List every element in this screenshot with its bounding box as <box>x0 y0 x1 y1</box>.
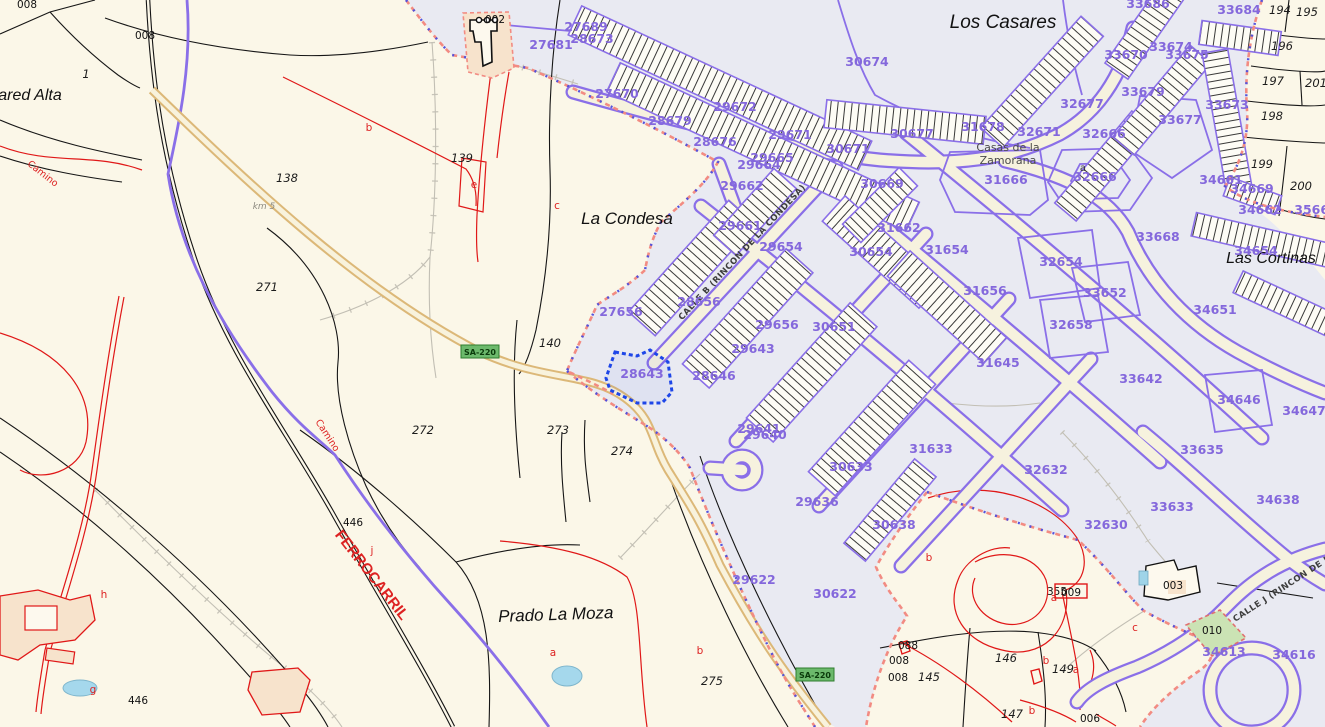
place-name: Los Casares <box>950 12 1057 33</box>
parcel-label-urban: 31656 <box>963 283 1007 298</box>
parcel-label-urban: 33686 <box>1126 0 1170 11</box>
parcel-label-urban: 31666 <box>984 172 1028 187</box>
parcel-label-rural: 196 <box>1271 39 1293 53</box>
parcel-label-rural: 008 <box>888 672 908 684</box>
cadastral-map-viewport[interactable]: SA-220SA-220 Los CasaresLa CondesaPrado … <box>0 0 1325 727</box>
parcel-label-urban: 32677 <box>1060 96 1104 111</box>
parcel-label-urban: 34647 <box>1282 403 1325 418</box>
parcel-label-rural: 200 <box>1290 179 1312 193</box>
settlement-names-layer: Casas de laZamorana <box>976 141 1039 167</box>
parcel-label-urban: 30674 <box>845 54 889 69</box>
place-name: ared Alta <box>0 87 62 104</box>
parcel-label-rural: 008 <box>889 655 909 667</box>
parcel-label-urban: 31654 <box>925 242 969 257</box>
cadastral-map: SA-220SA-220 Los CasaresLa CondesaPrado … <box>0 0 1325 727</box>
parcel-label-rural: 139 <box>451 151 473 165</box>
parcel-label-rural: 446 <box>128 695 148 707</box>
parcel-label-urban: 30651 <box>812 319 856 334</box>
parcel-label-urban: 32630 <box>1084 517 1128 532</box>
parcel-label-rural: 149 <box>1052 662 1074 676</box>
parcel-label-rural: 273 <box>547 423 569 437</box>
boxed-label-text: 009 <box>1061 587 1081 599</box>
parcel-label-urban: 29640 <box>743 427 787 442</box>
parcel-label-rural: 088 <box>898 640 918 652</box>
parcel-label-urban: 31633 <box>909 441 953 456</box>
parcel-label-urban: 32658 <box>1049 317 1093 332</box>
parcel-label-urban: 28646 <box>692 368 736 383</box>
parcel-label-urban: 33652 <box>1083 285 1127 300</box>
parcel-label-rural: 145 <box>918 670 940 684</box>
parcel-label-rural: 146 <box>995 651 1017 665</box>
parcel-label-rural: 138 <box>276 171 298 185</box>
settlement-name: Zamorana <box>980 154 1037 167</box>
parcel-label-rural: 006 <box>1080 713 1100 725</box>
parcel-label-urban: 34662 <box>1238 202 1282 217</box>
parcel-label-urban: 30633 <box>829 459 873 474</box>
parcel-label-urban: 33642 <box>1119 371 1163 386</box>
parcel-label-urban: 30671 <box>826 141 870 156</box>
parcel-label-rural: 201 <box>1305 76 1325 90</box>
settlement-name: Casas de la <box>976 141 1039 154</box>
parcel-label-urban: 28679 <box>648 113 692 128</box>
parcel-label-urban: 29661 <box>718 218 762 233</box>
parcel-label-urban: 34646 <box>1217 392 1261 407</box>
parcel-label-urban: 34638 <box>1256 492 1300 507</box>
parcel-label-urban: 35669 <box>1294 202 1325 217</box>
parcel-label-rural: 140 <box>539 336 561 350</box>
parcel-label-urban: 31662 <box>877 220 921 235</box>
parcel-label-rural: 197 <box>1262 74 1285 88</box>
subparcel-letter: b <box>926 552 933 564</box>
parcel-label-urban: 27670 <box>595 86 639 101</box>
parcel-label-urban: 33675 <box>1165 47 1209 62</box>
parcel-label-urban: 33670 <box>1104 47 1148 62</box>
parcel-label-rural: 003 <box>1163 580 1183 592</box>
parcel-label-urban: 33684 <box>1217 2 1261 17</box>
parcel-label-urban: 29643 <box>731 341 775 356</box>
parcel-label-rural: 271 <box>256 280 278 294</box>
parcel-label-rural: 010 <box>1202 625 1222 637</box>
parcel-label-urban: 30654 <box>849 244 893 259</box>
parcel-label-urban: 34669 <box>1230 181 1274 196</box>
parcel-label-urban: 29671 <box>768 127 812 142</box>
parcel-label-urban: 27681 <box>529 37 573 52</box>
subparcel-letter: a <box>1080 163 1086 174</box>
subparcel-letter: g <box>90 684 97 696</box>
parcel-label-rural: 275 <box>701 674 723 688</box>
subparcel-letter: b <box>1043 655 1050 667</box>
parcel-label-rural: 002 <box>485 14 505 26</box>
parcel-label-urban: 33677 <box>1158 112 1202 127</box>
parcel-label-rural: 198 <box>1261 109 1283 123</box>
parcel-label-urban: 31645 <box>976 355 1020 370</box>
parcel-label-urban: 33635 <box>1180 442 1224 457</box>
place-name: La Condesa <box>581 209 673 228</box>
parcel-label-urban: 31678 <box>961 119 1005 134</box>
parcel-label-rural: 008 <box>17 0 37 11</box>
parcel-label-urban: 29672 <box>713 99 757 114</box>
parcel-label-urban: 29656 <box>755 317 799 332</box>
subparcel-letter: j <box>370 545 374 557</box>
parcel-label-urban: 28676 <box>693 134 737 149</box>
parcel-label-urban: 32654 <box>1039 254 1083 269</box>
parcel-label-urban: 30638 <box>872 517 916 532</box>
parcel-label-urban: 30622 <box>813 586 857 601</box>
parcel-label-rural: 274 <box>611 444 633 458</box>
parcel-label-rural: 199 <box>1251 157 1273 171</box>
road-badge-text: SA-220 <box>464 348 496 357</box>
subparcel-letter: e <box>471 179 477 191</box>
parcel-label-rural: 272 <box>412 423 434 437</box>
parcel-label-urban: 29622 <box>732 572 776 587</box>
parcel-label-urban: 27656 <box>599 304 643 319</box>
parcel-label-urban: 29654 <box>759 239 803 254</box>
subparcel-letter: h <box>101 589 108 601</box>
parcel-label-rural: 1 <box>82 67 89 81</box>
parcel-label-urban: 29662 <box>720 178 764 193</box>
parcel-label-rural: 446 <box>343 517 363 529</box>
parcel-label-urban: 32666 <box>1082 126 1126 141</box>
parcel-label-urban: 33679 <box>1121 84 1165 99</box>
parcel-label-urban: 33668 <box>1136 229 1180 244</box>
parcel-label-urban: 34651 <box>1193 302 1237 317</box>
subparcel-letter: c <box>1132 622 1138 634</box>
parcel-label-urban: 34616 <box>1272 647 1316 662</box>
parcel-label-urban: 32671 <box>1017 124 1061 139</box>
parcel-label-urban: 28673 <box>570 31 614 46</box>
road-badge-text: SA-220 <box>799 671 831 680</box>
parcel-label-urban: 28656 <box>677 294 721 309</box>
parcel-label-urban: 30669 <box>860 176 904 191</box>
parcel-label-urban: 32632 <box>1024 462 1068 477</box>
subparcel-letter: b <box>697 645 704 657</box>
parcel-label-urban: 34654 <box>1234 243 1278 258</box>
parcel-label-rural: 008 <box>135 30 155 42</box>
parcel-label-rural: 147 <box>1001 707 1024 721</box>
subparcel-letter: b <box>366 122 373 134</box>
parcel-label-rural: 194 <box>1269 3 1291 17</box>
parcel-label-urban: 33673 <box>1205 97 1249 112</box>
parcel-label-urban: 33633 <box>1150 499 1194 514</box>
subparcel-letter: b <box>1029 705 1036 717</box>
parcel-label-urban: 30677 <box>890 126 934 141</box>
parcel-label-urban: 34613 <box>1202 644 1246 659</box>
parcel-label-urban: 28643 <box>620 366 664 381</box>
subparcel-letter: a <box>550 647 556 659</box>
subparcel-letter: c <box>554 200 560 212</box>
subparcel-letter: a <box>1073 664 1079 676</box>
parcel-label-urban: 29664 <box>737 157 781 172</box>
pond <box>552 666 582 686</box>
parcel-label-rural: 195 <box>1296 5 1318 19</box>
parcel-label-urban: 29636 <box>795 494 839 509</box>
place-name: Prado La Moza <box>498 603 614 626</box>
km-marker: km 5 <box>253 202 276 212</box>
